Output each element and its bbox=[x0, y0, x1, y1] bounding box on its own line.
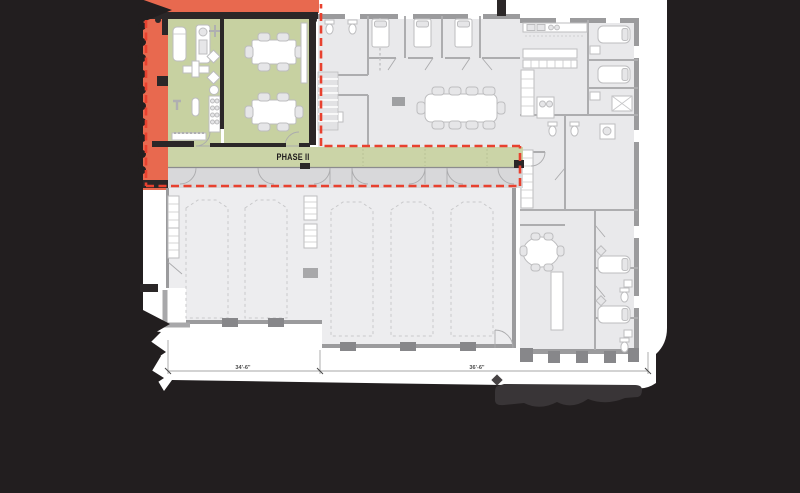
conference-room bbox=[224, 19, 310, 147]
stability-ball-icon bbox=[210, 86, 219, 95]
chimney bbox=[497, 0, 506, 16]
right-wing bbox=[520, 18, 639, 363]
weight-rack-icon bbox=[209, 96, 220, 132]
dimension-right: 36'-6" bbox=[469, 365, 485, 371]
floor-plan-drawing: PHASE II bbox=[0, 0, 800, 493]
bed-icons-dorm bbox=[372, 19, 472, 47]
counter-table-icon bbox=[551, 272, 563, 330]
phase2-corridor: PHASE II bbox=[168, 147, 524, 188]
shower-icon bbox=[612, 96, 632, 111]
dumbbell-rack-icon bbox=[172, 133, 206, 140]
treadmill-icon bbox=[173, 27, 186, 61]
dorm-wing bbox=[318, 0, 520, 147]
dimension-left: 34'-6" bbox=[235, 365, 251, 371]
side-table-icon bbox=[392, 97, 405, 106]
phase2-label: PHASE II bbox=[277, 151, 310, 162]
whiteboard-icon bbox=[301, 23, 307, 83]
fitness-room bbox=[168, 19, 221, 147]
floor-plan-canvas: PHASE II bbox=[0, 0, 800, 493]
